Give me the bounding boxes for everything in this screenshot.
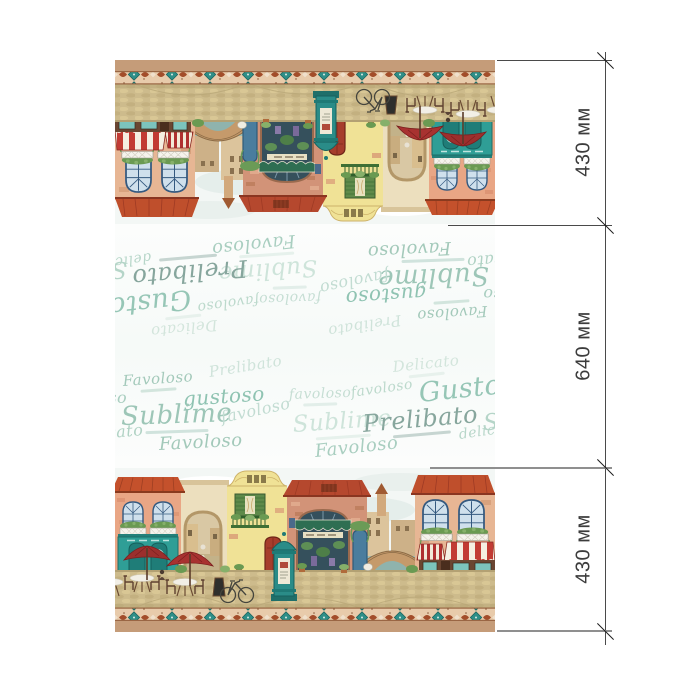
scatter-word-favoloso: Favoloso [367,238,452,260]
scatter-word-favoloso: favoloso [350,377,414,400]
dimension-tick [597,52,614,69]
extension-line-bottom [497,630,612,632]
dimension-tick [597,623,614,640]
scatter-word-favoloso: favoloso [289,386,352,407]
dimension-label-top: 430 мм [573,107,596,176]
scatter-word-prelibato: Prelibato [327,312,402,338]
scatter-word-prelibato: Prelibato [208,354,283,380]
scatter-word-favoloso: favoloso [258,286,321,307]
script-words-zone-inverted: FavolosoPrelibatoDelicatogustosogustosof… [115,224,495,346]
dimension-tick [597,459,614,476]
scatter-word-delicato: delicato [466,248,495,270]
towel-panel: FavolosoPrelibatoDelicatogustosogustosof… [115,60,495,632]
panel-top-half-mirrored: FavolosoPrelibatoDelicatogustosogustosof… [115,60,495,346]
dimension-tick [597,217,614,234]
panel-bottom-half: FavolosoPrelibatoDelicatogustosogustosof… [115,346,495,632]
dimension-label-middle: 640 мм [573,311,596,380]
scatter-word-favoloso: Favoloso [159,432,244,454]
scatter-word-favoloso: favoloso [196,292,260,315]
village-scene-border-bottom [115,468,495,632]
scatter-word-delicato: delicato [115,422,144,444]
extension-line-top [497,60,612,61]
dimension-label-bottom: 430 мм [573,514,596,583]
script-words-zone: FavolosoPrelibatoDelicatogustosogustosof… [115,346,495,468]
dimension-line [605,52,606,645]
village-scene-border-top-inverted [115,60,495,224]
